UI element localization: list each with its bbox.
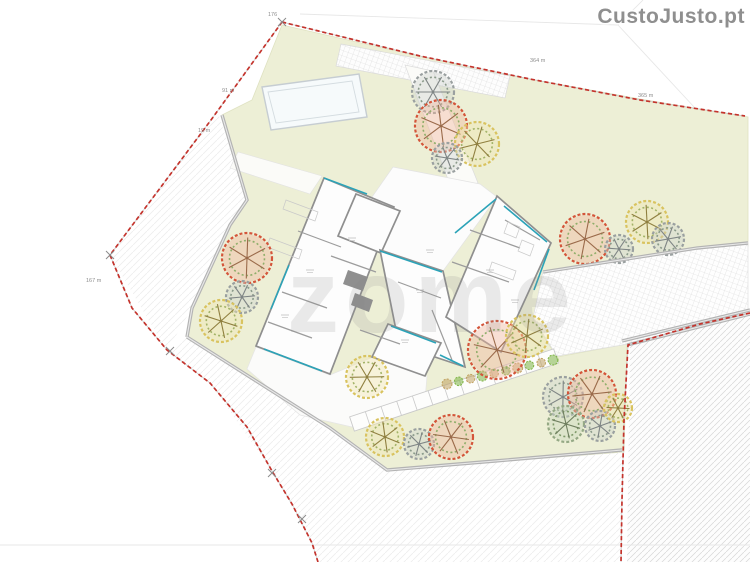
watermark-layer: zome xyxy=(287,239,577,355)
tree-red xyxy=(429,415,473,459)
garden-bush xyxy=(548,355,558,365)
dimension-label: 167 m xyxy=(86,278,102,284)
dimension-label: 176 xyxy=(268,12,277,18)
site-plan-image: 17691 m19 m167 m364 m365 m zome CustoJus… xyxy=(0,0,750,562)
garden-bush xyxy=(442,379,452,389)
garden-bush xyxy=(454,377,463,386)
dimension-label: 364 m xyxy=(530,58,546,64)
dimension-label: 19 m xyxy=(198,128,211,134)
garden-bush xyxy=(537,358,546,367)
dimension-label: 91 m xyxy=(222,88,235,94)
neighbor-parcel-hatch xyxy=(627,315,750,562)
garden-bush xyxy=(525,361,534,370)
site-plan-svg: 17691 m19 m167 m364 m365 m zome xyxy=(0,0,750,562)
dimension-label: 365 m xyxy=(638,93,654,99)
agency-watermark: zome xyxy=(287,239,577,355)
garden-bush xyxy=(466,374,475,383)
brand-watermark: CustoJusto.pt xyxy=(597,5,745,29)
